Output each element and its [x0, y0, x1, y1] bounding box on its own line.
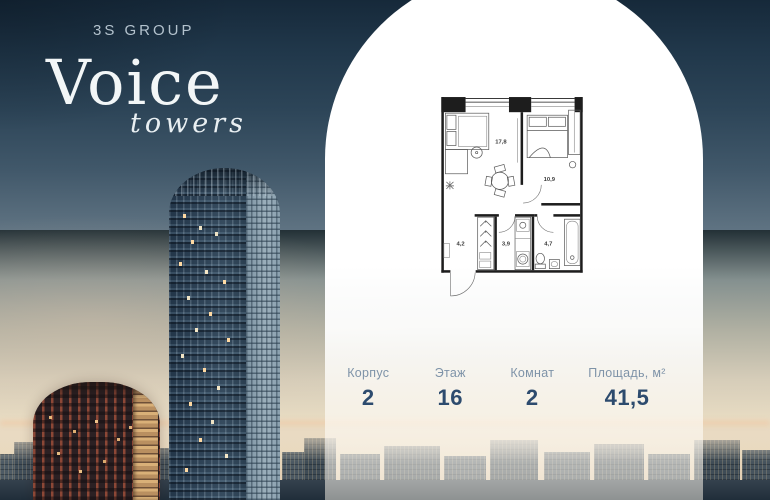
stat-rooms: Комнат 2 — [506, 366, 558, 411]
tower-crown — [169, 168, 280, 196]
glass-tower — [169, 168, 280, 500]
red-building-lit-windows — [33, 382, 36, 385]
stat-rooms-value: 2 — [506, 385, 558, 411]
project-subname: towers — [130, 110, 247, 137]
stat-rooms-label: Комнат — [506, 366, 558, 380]
room-label-storage: 3,9 — [502, 241, 511, 247]
room-label-bedroom: 10,9 — [544, 177, 556, 183]
red-arched-building — [33, 382, 160, 500]
stat-building-value: 2 — [342, 385, 394, 411]
room-label-hallway: 4,2 — [456, 241, 465, 247]
room-label-living: 17,8 — [495, 139, 507, 145]
project-name: Voice — [46, 52, 247, 114]
project-logo: Voice towers — [46, 52, 247, 137]
stat-building: Корпус 2 — [342, 366, 394, 411]
floor-plan: 17,8 10,9 4,2 3,9 4,7 — [436, 92, 588, 306]
tower-front-facade — [169, 168, 246, 500]
stat-floor: Этаж 16 — [424, 366, 476, 411]
stat-building-label: Корпус — [342, 366, 394, 380]
developer-name: 3S GROUP — [93, 22, 195, 39]
stat-area-label: Площадь, м² — [588, 366, 665, 380]
room-label-bathroom: 4,7 — [544, 241, 552, 247]
tower-side-facade — [246, 168, 280, 500]
stat-area-value: 41,5 — [588, 385, 665, 411]
red-building-roof — [33, 382, 160, 400]
stat-floor-label: Этаж — [424, 366, 476, 380]
tower-lit-windows — [169, 168, 172, 172]
stat-floor-value: 16 — [424, 385, 476, 411]
stat-area: Площадь, м² 41,5 — [588, 366, 665, 411]
apartment-stats: Корпус 2 Этаж 16 Комнат 2 Площадь, м² 41… — [315, 366, 693, 411]
red-building-glass-section — [133, 387, 158, 500]
listing-card: 3S GROUP Voice towers — [0, 0, 770, 500]
